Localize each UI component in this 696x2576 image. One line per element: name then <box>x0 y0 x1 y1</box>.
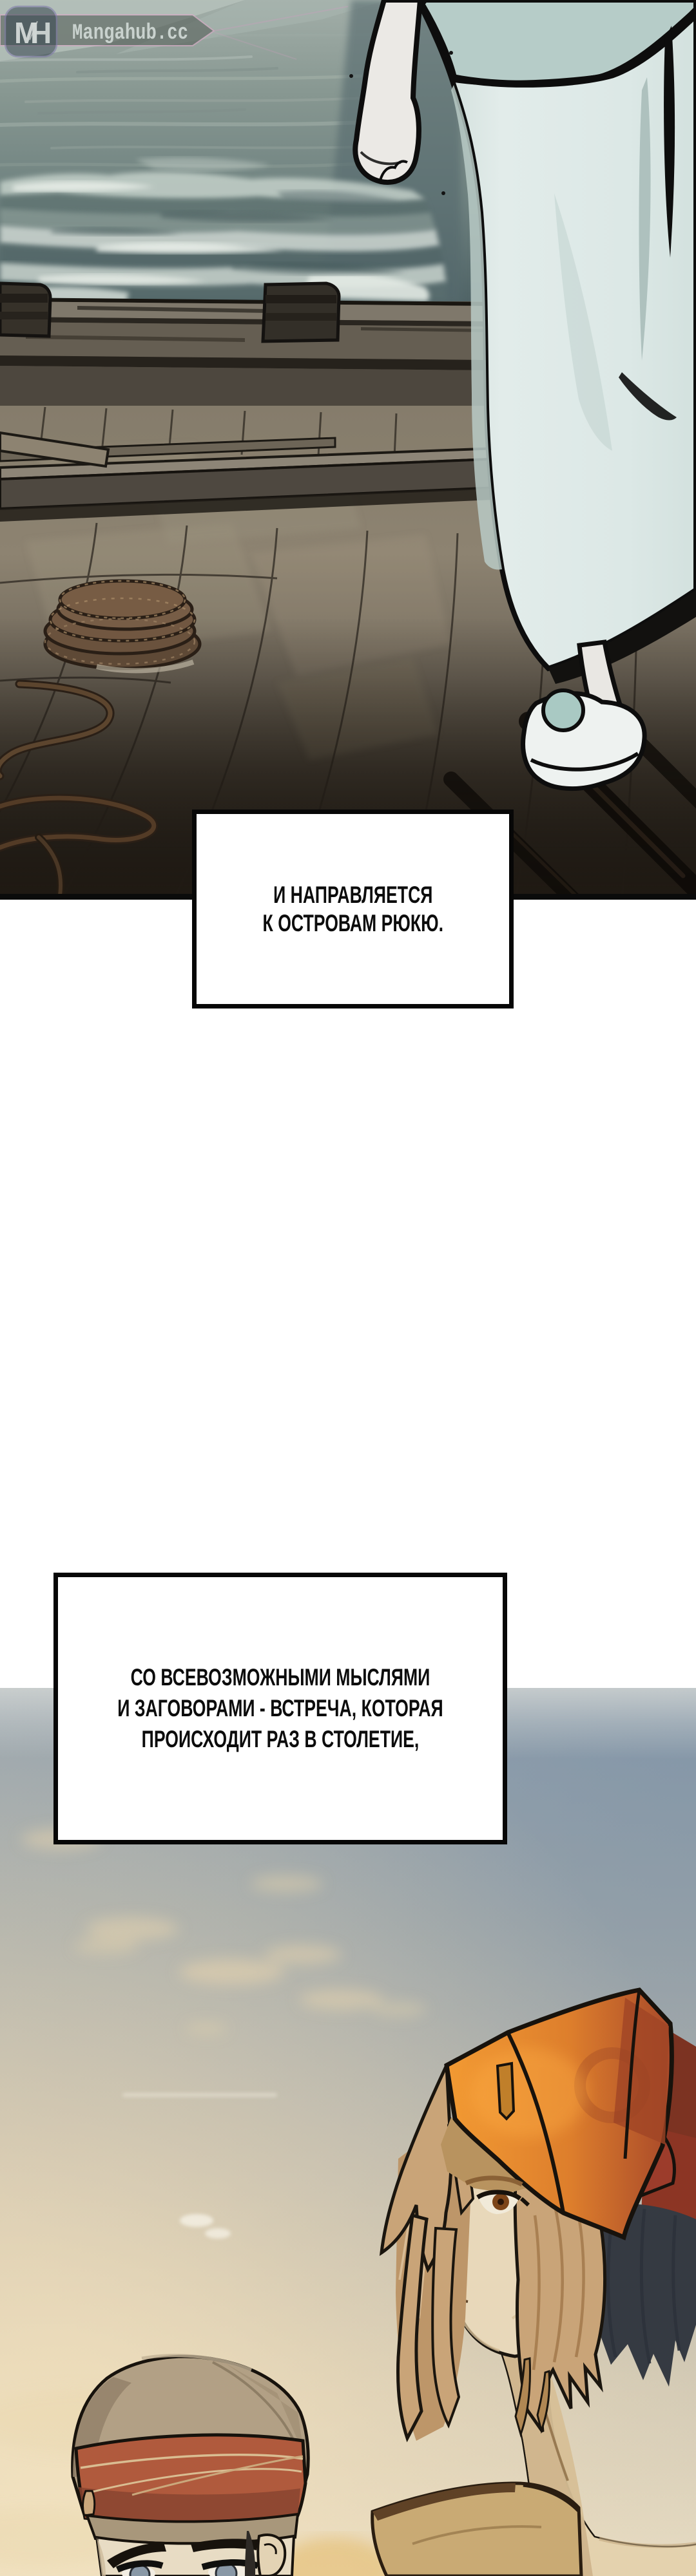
svg-text:Mangahub.cc: Mangahub.cc <box>72 21 188 46</box>
svg-text:H: H <box>30 16 52 50</box>
